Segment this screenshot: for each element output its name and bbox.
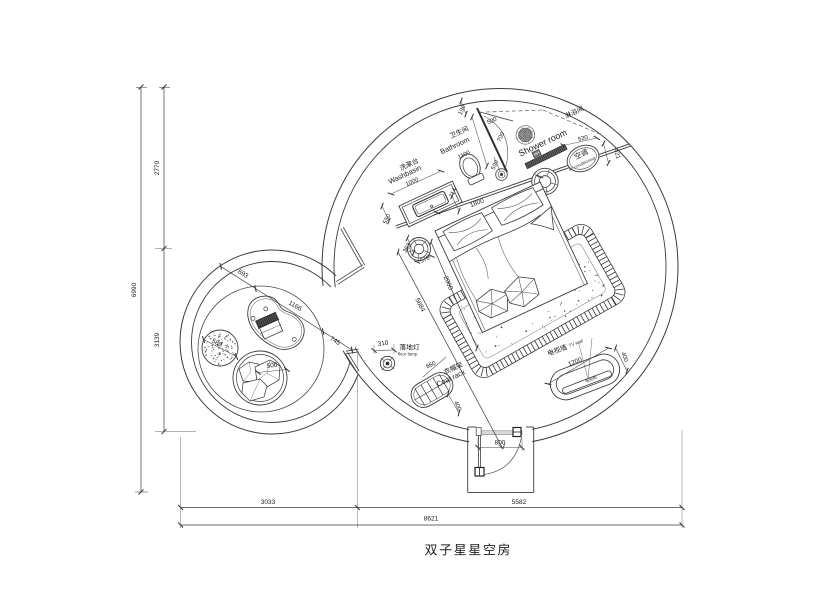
svg-text:2770: 2770 bbox=[154, 160, 161, 175]
svg-text:3139: 3139 bbox=[154, 332, 161, 347]
svg-text:3033: 3033 bbox=[261, 499, 276, 506]
svg-text:floor lamp: floor lamp bbox=[398, 352, 418, 357]
svg-text:5582: 5582 bbox=[512, 499, 527, 506]
svg-text:8621: 8621 bbox=[424, 516, 439, 523]
svg-text:6990: 6990 bbox=[131, 282, 138, 297]
